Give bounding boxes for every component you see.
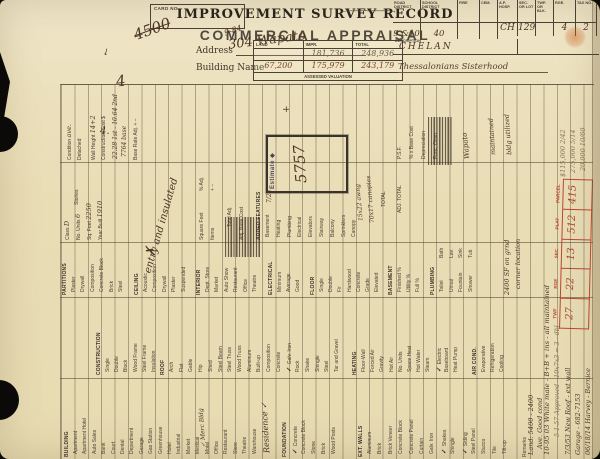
checklist-item-roof-17: Tar and Gravel bbox=[335, 339, 340, 372]
description-value: CHELAN bbox=[399, 42, 453, 52]
checklist-item-plumbing-3: Shower bbox=[469, 275, 474, 292]
handwritten-p1: $115,000 2/42 bbox=[559, 129, 567, 177]
field-baserate-label: Base Rate Adj. + − bbox=[133, 118, 139, 160]
checklist-item-ceiling-3: Plaster bbox=[172, 276, 177, 292]
field-units-label: No. Units bbox=[76, 218, 82, 240]
binder-hole-top bbox=[0, 116, 18, 152]
checklist-item-added-2: Plumbing bbox=[288, 216, 293, 237]
field-units-value: 6 bbox=[74, 214, 82, 218]
district-col-school: SCHOOL DISTRICT bbox=[421, 0, 458, 23]
district-val-road: CH bbox=[498, 23, 518, 36]
appraisal-card: CARD NO. IMPROVEMENT SURVEY RECORD COMME… bbox=[0, 0, 600, 459]
district-val-sec-lot: 9 &10 bbox=[393, 23, 421, 39]
field-wallheight-value: 14+2 bbox=[89, 115, 97, 133]
field-constcost-label: Construction Cost $ bbox=[101, 116, 107, 160]
field-class-label: Class bbox=[65, 226, 71, 240]
valuation-r2-impr: 175,979 bbox=[304, 61, 354, 72]
assessed-valuation-table: LAND IMPR. TOTAL 181,736 248,936 67,200 … bbox=[253, 40, 403, 81]
checklist-item-added-3: Electrical bbox=[298, 217, 303, 237]
torn-edge bbox=[0, 52, 10, 118]
field-deprec: Depreciation bbox=[422, 131, 427, 159]
district-col-cem: CEM. bbox=[480, 0, 498, 23]
handwritten-plus2: + bbox=[282, 105, 292, 113]
checklist-item-heating-8: ✓ Electric bbox=[436, 348, 443, 372]
checklist-item-roof-14: Shake bbox=[306, 358, 311, 372]
checklist-item-aircond-1: Refrigeration bbox=[491, 343, 496, 372]
field-adjtotal-label: ADJ. TOTAL bbox=[397, 185, 403, 213]
checklist-item-building-16: Restaurant bbox=[224, 430, 229, 454]
estimate-stamp-value: 5757 bbox=[289, 136, 311, 191]
card-right-edge bbox=[592, 0, 600, 459]
checklist-item-floor-5: Grade bbox=[366, 278, 371, 292]
checklist-item-extwalls-13: Tilt-up bbox=[503, 440, 508, 454]
valuation-col-land: LAND bbox=[254, 41, 304, 49]
checklist-item-building-11: Industrial bbox=[177, 434, 182, 454]
checklist-item-extwalls-10: Steel Panel bbox=[472, 428, 477, 454]
handwritten-long1: 10-95 03 White male - B+B + ins - all ma… bbox=[543, 285, 551, 455]
checklist-item-building-18: Theatre bbox=[243, 437, 248, 454]
checklist-item-ceiling-4: Suspended bbox=[182, 267, 187, 292]
handwritten-cc2: 7764 base bbox=[121, 126, 128, 157]
checklist-item-heating-1: Forced Air bbox=[371, 349, 376, 372]
estimate-stamp-label: Estimate ◆ bbox=[268, 137, 277, 191]
section-ceiling-title: CEILING bbox=[134, 273, 140, 295]
field-total: TOTAL bbox=[382, 191, 387, 207]
checklist-item-foundation-4: Wood Posts bbox=[332, 427, 337, 454]
checklist-item-building-3: Bank bbox=[102, 443, 107, 454]
checklist-item-building-0: Apartment bbox=[74, 431, 79, 454]
field-stories-label: Stories bbox=[74, 189, 80, 205]
estimate-stamp: Estimate ◆ 5757 bbox=[266, 135, 348, 193]
field-items2: Items bbox=[211, 228, 216, 240]
checklist-item-building-1: Apartment Hotel bbox=[83, 418, 88, 454]
checklist-item-interior-0: Dept. Store bbox=[206, 267, 211, 292]
checklist-item-roof-6: Steel Truss bbox=[228, 347, 233, 372]
district-val-tax bbox=[480, 23, 498, 39]
checklist-item-construction-1: Double bbox=[115, 356, 120, 372]
handwritten-down-arrow: ↓ bbox=[101, 47, 111, 59]
field-sqfeet: Sq. Feet 2250 bbox=[86, 203, 93, 240]
handwritten-p2: 275,000 5/14 bbox=[569, 129, 577, 173]
checklist-item-partitions-0: Plaster bbox=[72, 276, 77, 292]
parcel-value-twp: 27 bbox=[559, 299, 590, 330]
section-floor-title: FLOOR bbox=[310, 277, 316, 296]
district-col-twp-blk: TWP. OR BLK. bbox=[536, 0, 554, 23]
checklist-item-basement-1: Utility % bbox=[407, 274, 412, 292]
field-plusminus-label: + − bbox=[210, 184, 216, 191]
field-detached-label: Detached bbox=[77, 139, 83, 160]
parcel-value-sec: 13 bbox=[561, 239, 592, 270]
checklist-item-building-2: Auto Sales bbox=[93, 430, 98, 454]
checklist-item-plumbing2-1: Lav. bbox=[450, 249, 455, 258]
section-heating-title: HEATING bbox=[352, 351, 358, 375]
parcel-stamp: TWP RGE SEC PLAT PARCEL 27 22 13 512 415 bbox=[552, 179, 593, 330]
checklist-item-roof-3: Hip bbox=[199, 364, 204, 372]
checklist-item-ceiling-2: Drywall bbox=[163, 276, 168, 292]
checklist-item-extwalls-9: ✓ Siding bbox=[462, 432, 469, 454]
field-sqfeet-label: Sq. Feet bbox=[87, 220, 93, 240]
checklist-item-basement-0: Finished % bbox=[398, 267, 403, 292]
checklist-item-extwalls-5: Curtain bbox=[420, 438, 425, 454]
district-val-fire bbox=[536, 23, 554, 36]
column-divider-2 bbox=[60, 297, 593, 298]
checklist-item-building-4: Court bbox=[112, 442, 117, 454]
checklist-item-heating-6: Hot Water bbox=[417, 350, 422, 372]
checklist-item-heating-3: Hot Air bbox=[390, 357, 395, 372]
district-col-sec-lot: SEC. OR LOT bbox=[518, 0, 536, 23]
checklist-item-roof-1: Flat bbox=[180, 364, 185, 372]
valuation-caption: ASSESSED VALUATION bbox=[254, 72, 402, 80]
checklist-item-partitions-4: Brick bbox=[110, 281, 115, 292]
checklist-item-electrical-1: Average bbox=[287, 273, 292, 292]
checklist-item-aircond-2: Cooling bbox=[500, 355, 505, 372]
checklist-item-extwalls-0: Aluminum bbox=[368, 432, 373, 454]
section-interior-title: INTERIOR bbox=[196, 270, 202, 296]
address-label: Address bbox=[196, 46, 233, 56]
checklist-item-plumbing2-3: Tub bbox=[469, 250, 474, 258]
handwritten-r2: Garage - 682-7153 bbox=[574, 393, 582, 455]
district-col-ap-hosp: A.P. HOSP. bbox=[498, 0, 518, 23]
checklist-item-ceiling-0: Acoustic bbox=[144, 273, 149, 292]
checklist-item-heating-9: Baseboard bbox=[445, 348, 450, 372]
checklist-item-foundation-1: Concrete Block bbox=[302, 420, 307, 454]
field-yearbuilt-value: 1910 bbox=[96, 201, 104, 218]
field-yearbuilt-label: Year Built bbox=[98, 217, 104, 240]
handwritten-sf2400: 2400 SF on grnd bbox=[503, 240, 511, 295]
scanned-card-page: CARD NO. IMPROVEMENT SURVEY RECORD COMME… bbox=[0, 0, 600, 459]
parcel-value-rge: 22 bbox=[560, 269, 591, 300]
checklist-item-construction-2: Block bbox=[124, 360, 129, 372]
field-pctbase: % x Base Cost bbox=[410, 126, 415, 159]
section-partitions-title: PARTITIONS bbox=[62, 263, 68, 295]
checklist-item-foundation-2: Stone bbox=[312, 441, 317, 454]
valuation-col-impr: IMPR. bbox=[304, 41, 354, 49]
section-extwalls-title: EXT. WALLS bbox=[358, 426, 364, 457]
checklist-item-floor-4: Concrete bbox=[357, 272, 362, 292]
field-psf-label: P.S.F. bbox=[397, 146, 403, 159]
valuation-r2-land: 67,200 bbox=[254, 61, 304, 72]
handwritten-corner: corner location bbox=[514, 239, 522, 289]
field-detached: Detached bbox=[78, 139, 83, 160]
field-pctadj-label: % Adj. bbox=[199, 177, 205, 191]
checklist-item-roof-0: Arch bbox=[170, 362, 175, 372]
checklist-item-plumbing2-2: Sink bbox=[459, 248, 464, 258]
checklist-item-partitions-5: Steel bbox=[119, 281, 124, 292]
checklist-item-roof-13: Rock bbox=[296, 361, 301, 372]
checklist-item-floor-2: Fir bbox=[338, 286, 343, 292]
parcel-value-plat: 512 bbox=[561, 210, 592, 241]
checklist-item-heating-10: Heat Pump bbox=[454, 347, 459, 372]
district-val-twp-blk: 40 bbox=[421, 23, 458, 39]
field-adjtotal: ADJ. TOTAL bbox=[398, 185, 403, 213]
checklist-item-building-5: Dental bbox=[121, 440, 126, 454]
column-divider-1 bbox=[60, 378, 593, 379]
owner-note: Thessalonians Sisterhood bbox=[398, 62, 548, 73]
district-col-rge: RGE. bbox=[554, 0, 576, 23]
field-plusminus: + − bbox=[211, 184, 216, 191]
checklist-item-roof-9: Built-up bbox=[257, 355, 262, 372]
checklist-item-building-17: Store bbox=[234, 442, 239, 454]
checklist-item-basement-2: Full % bbox=[416, 278, 421, 292]
checklist-item-plumbing2-0: Bath bbox=[440, 248, 445, 258]
handwritten-p3: 20,000 10/60 bbox=[579, 127, 587, 171]
checklist-item-heating-0: Floor-Wall bbox=[362, 349, 367, 372]
checklist-item-interior-2: Auto Show bbox=[225, 268, 230, 292]
checklist-item-building-7: Garage bbox=[140, 437, 145, 454]
district-val-school: 129 bbox=[518, 23, 536, 36]
checklist-item-construction-4: Steel Frame bbox=[143, 345, 148, 372]
checklist-item-roof-15: Shingle bbox=[316, 355, 321, 372]
description-cell: DESCRIPTION CHELAN bbox=[393, 39, 518, 54]
section-electrical-title: ELECTRICAL bbox=[268, 261, 274, 295]
field-class: Class D bbox=[64, 221, 71, 240]
checklist-item-electrical-2: Good bbox=[296, 280, 301, 292]
checklist-item-interior-3: Restaurant bbox=[234, 268, 239, 292]
checklist-item-plumbing-0: Toilet bbox=[440, 280, 445, 292]
checklist-item-heating-7: Steam bbox=[426, 358, 431, 372]
handwritten-appr: 5-1-57 Approved - 10x7x3 = 3 - dbl bbox=[554, 325, 561, 437]
checklist-item-building-15: Office bbox=[215, 441, 220, 454]
hatched-block-2 bbox=[428, 117, 452, 165]
parcel-value-parcel: 415 bbox=[562, 179, 593, 211]
field-condition-label: Condition bbox=[67, 137, 73, 160]
valuation-r1-land bbox=[254, 49, 304, 61]
section-basement-title: BASEMENT bbox=[388, 265, 394, 295]
checklist-item-roof-8: Aluminum bbox=[248, 350, 253, 372]
section-foundation-title: FOUNDATION bbox=[282, 422, 288, 457]
checklist-item-construction-3: Wood Frame bbox=[134, 343, 139, 372]
checklist-item-building-9: Greenhouse bbox=[159, 426, 164, 454]
field-condition: Condition ave. bbox=[66, 124, 73, 160]
field-sqfeet-value: 2250 bbox=[85, 203, 93, 220]
field-stories: Stories bbox=[75, 189, 80, 205]
checklist-item-added-8: Canopy bbox=[352, 220, 357, 237]
field-pctbase-label: % x Base Cost bbox=[409, 126, 415, 159]
checklist-item-foundation-3: Brick bbox=[322, 443, 327, 454]
checklist-item-electrical-0: Minimum bbox=[278, 272, 283, 292]
checklist-item-plumbing-2: Fountain bbox=[459, 273, 464, 292]
checklist-item-extwalls-12: Tile bbox=[493, 446, 498, 454]
checklist-item-roof-5: Steel Beam bbox=[219, 346, 224, 372]
checklist-item-building-10: Hotel bbox=[168, 442, 173, 454]
valuation-r2-total: 243,179 bbox=[353, 61, 402, 72]
checklist-item-heating-4: No. Units bbox=[399, 351, 404, 372]
binder-hole-bottom bbox=[0, 380, 19, 420]
field-baserate: Base Rate Adj. + − bbox=[134, 118, 139, 160]
district-col-fire: FIRE bbox=[458, 0, 480, 23]
checklist-item-interior-5: Theatre bbox=[253, 275, 258, 292]
checklist-item-aircond-0: Evaporative bbox=[482, 346, 487, 372]
valuation-r1-impr: 181,736 bbox=[304, 49, 354, 61]
checklist-item-building-19: Warehouse bbox=[253, 429, 258, 454]
checklist-item-roof-2: Gable bbox=[189, 359, 194, 372]
handwritten-r3: 06/18/14 Harvey - Bernice bbox=[584, 368, 592, 455]
handwritten-cc1: 22.28 1st - 10.64 2nd bbox=[112, 94, 119, 159]
field-squarefeet2: Square Feet bbox=[200, 212, 205, 240]
checklist-item-construction-0: Single bbox=[106, 358, 111, 372]
field-wallheight: Wall Height 14+2 bbox=[90, 115, 97, 160]
checklist-item-extwalls-4: Concrete Panel bbox=[410, 420, 415, 454]
checklist-item-roof-7: Wood Truss bbox=[238, 345, 243, 372]
checklist-item-partitions-1: Drywall bbox=[81, 276, 86, 292]
checklist-item-foundation-0: ✓ Concrete bbox=[292, 426, 299, 454]
checklist-item-building-8: Gas Station bbox=[149, 428, 154, 454]
field-constcost: Construction Cost $ bbox=[102, 116, 107, 160]
district-val-rge bbox=[458, 23, 480, 39]
checklist-item-interior-1: Market bbox=[215, 277, 220, 292]
handwritten-land: Land: 5400 - 2400 bbox=[527, 395, 535, 455]
district-col-road: ROAD DISTRICT bbox=[393, 0, 421, 23]
checklist-item-building-12: Market bbox=[187, 439, 192, 454]
checklist-item-extwalls-7: ✓ Shakes bbox=[441, 430, 448, 454]
checklist-item-heating-5: Space Heat bbox=[408, 346, 413, 372]
field-wallheight-label: Wall Height bbox=[91, 133, 97, 160]
handwritten-ave: Ave. Good cond bbox=[536, 398, 544, 449]
checklist-item-extwalls-8: Shingle bbox=[451, 437, 456, 454]
handwritten-crossed-number: 4500 bbox=[131, 14, 173, 44]
checklist-item-roof-11: Concrete bbox=[277, 352, 282, 372]
checklist-item-roof-16: Steel bbox=[325, 361, 330, 372]
checklist-item-building-6: Department bbox=[130, 428, 135, 454]
checklist-item-partitions-3: Concrete Block bbox=[100, 258, 105, 292]
checklist-item-roof-10: Composition bbox=[267, 344, 272, 372]
field-deprec-label: Depreciation bbox=[421, 131, 427, 159]
checklist-item-extwalls-3: Concrete Block bbox=[399, 420, 404, 454]
checklist-item-extwalls-6: Galv. Iron bbox=[430, 433, 435, 454]
checklist-item-plumbing-1: Urinal bbox=[450, 279, 455, 292]
checklist-item-interior-4: Office bbox=[244, 279, 249, 292]
checklist-item-floor-0: Single bbox=[320, 278, 325, 292]
field-items2-label: Items bbox=[210, 228, 216, 240]
checklist-item-extwalls-1: Brick bbox=[378, 443, 383, 454]
checklist-item-heating-2: Gravity bbox=[380, 356, 385, 372]
checklist-item-added-1: Heating bbox=[277, 220, 282, 237]
checklist-item-extwalls-11: Stucco bbox=[482, 439, 487, 454]
checklist-item-floor-6: Elevated bbox=[375, 273, 380, 292]
checklist-item-added-5: Stairway bbox=[320, 218, 325, 237]
checklist-item-roof-12: ✓ Galv. Iron bbox=[286, 343, 293, 372]
field-squarefeet2-label: Square Feet bbox=[199, 212, 205, 240]
checklist-item-roof-4: Shed bbox=[209, 360, 214, 372]
ink-stain bbox=[564, 26, 586, 48]
checklist-item-construction-5: Insulation bbox=[152, 351, 157, 372]
checklist-item-partitions-2: Composition bbox=[91, 264, 96, 292]
field-psf: P.S.F. bbox=[398, 146, 403, 159]
checklist-item-extwalls-2: Brick Veneer bbox=[389, 426, 394, 454]
section-plumbing-title: PLUMBING bbox=[430, 267, 436, 295]
section-building-title: BUILDING bbox=[64, 431, 70, 457]
checklist-item-added-6: Balcony bbox=[331, 219, 336, 237]
section-construction-title: CONSTRUCTION bbox=[96, 332, 102, 375]
field-condition-value: ave. bbox=[65, 124, 73, 137]
field-yearbuilt: Year Built 1910 bbox=[97, 201, 104, 240]
checklist-item-added-7: Sprinklers bbox=[342, 215, 347, 237]
checklist-item-added-4: Elevators bbox=[309, 216, 314, 237]
checklist-item-floor-3: Hardwood bbox=[348, 269, 353, 292]
hatched-block-1 bbox=[225, 217, 260, 257]
section-roof-title: ROOF bbox=[160, 360, 166, 375]
rotated-form-body: BUILDINGApartmentApartment HotelAuto Sal… bbox=[60, 85, 600, 459]
field-units: No. Units 6 bbox=[75, 214, 82, 240]
checklist-item-added-0: Basement bbox=[266, 214, 271, 237]
handwritten-r1: 7/3/53 New Roof - ext wall bbox=[564, 368, 572, 455]
checklist-item-floor-1: Double bbox=[329, 276, 334, 292]
field-class-value: D bbox=[63, 221, 71, 226]
field-pctadj: % Adj. bbox=[200, 177, 205, 191]
field-total-label: TOTAL bbox=[381, 191, 387, 207]
section-aircond-title: AIR COND. bbox=[472, 347, 478, 375]
